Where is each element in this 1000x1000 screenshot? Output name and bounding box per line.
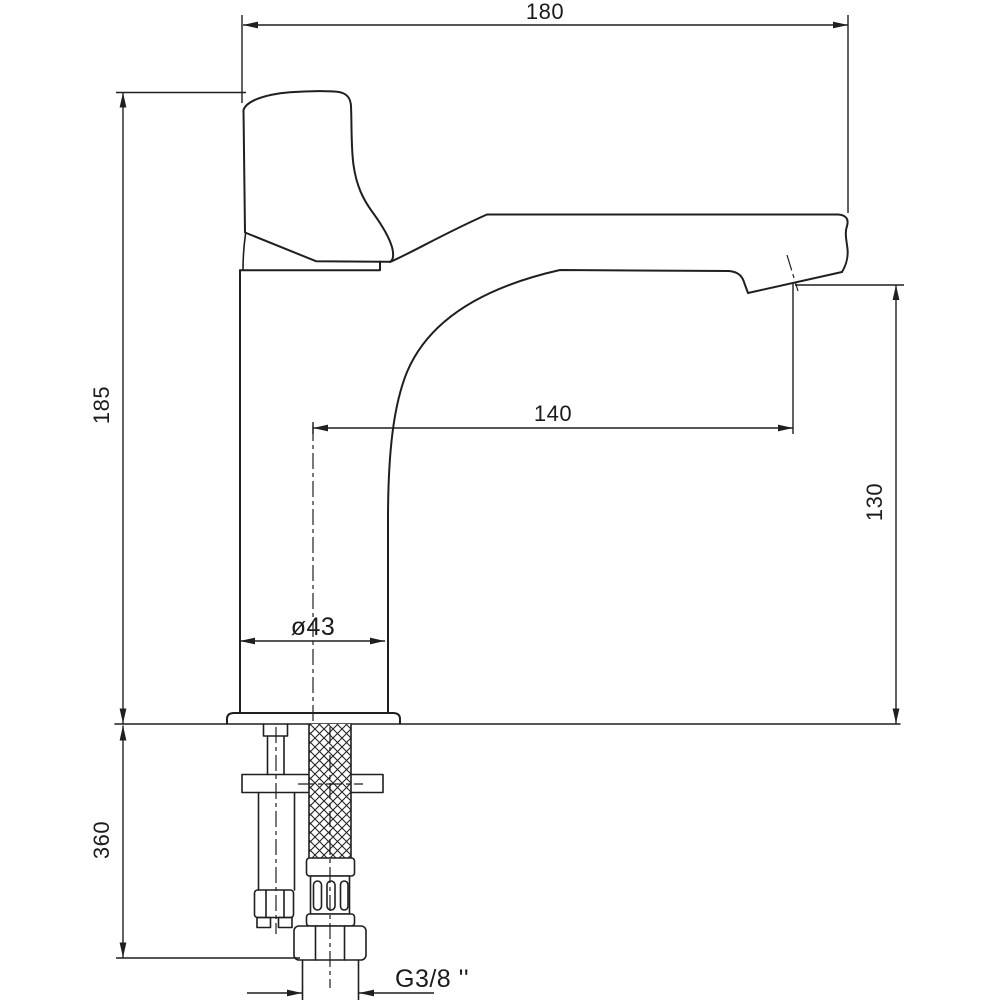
dimension-spout-reach: 140: [313, 283, 793, 434]
dim-below-deck-length-label: 360: [89, 821, 114, 859]
stud-nut: [255, 890, 294, 928]
dim-body-height-label: 185: [89, 386, 114, 424]
dim-thread-size-label: G3/8 '': [395, 965, 469, 993]
handle-collar-arc: [243, 234, 246, 270]
body-top-edge: [240, 262, 380, 271]
faucet-dimension-drawing: 180 185 140 130 ø43 360 G3: [0, 0, 1000, 1000]
dimension-base-diameter: ø43: [240, 613, 385, 644]
spout-underside-contour: [388, 270, 842, 713]
dimension-overall-width: 180: [242, 0, 848, 213]
faucet-handle-outline: [244, 91, 394, 262]
dimension-body-height: 185: [89, 93, 246, 724]
technical-drawing-canvas: 180 185 140 130 ø43 360 G3: [0, 0, 1000, 1000]
dim-overall-width-label: 180: [526, 0, 564, 24]
spout-upper-contour: [390, 215, 848, 273]
dimension-spout-height: 130: [795, 285, 904, 724]
faucet-outline: [115, 91, 900, 724]
dim-spout-reach-label: 140: [534, 401, 572, 426]
dim-base-diameter-label: ø43: [291, 613, 336, 641]
dim-spout-height-label: 130: [862, 483, 887, 521]
dimension-below-deck-length: 360: [89, 726, 300, 959]
